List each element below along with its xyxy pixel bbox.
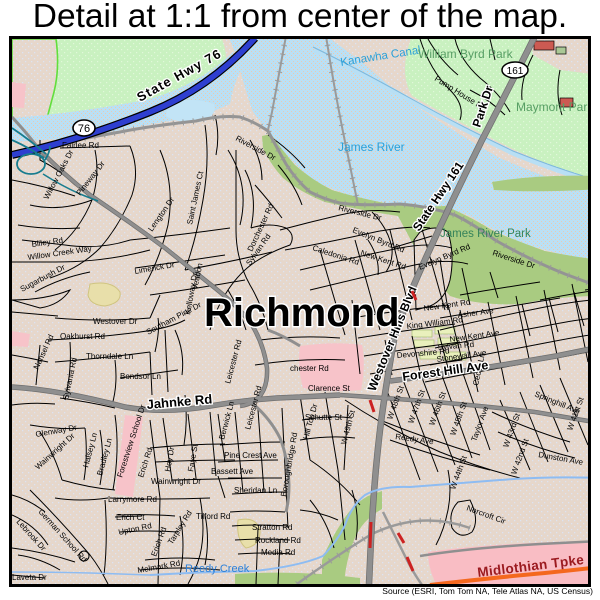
svg-text:76: 76 [78, 123, 90, 135]
svg-text:Richmond: Richmond [204, 291, 400, 335]
svg-text:Stratton Rd: Stratton Rd [252, 523, 292, 532]
svg-text:Westover Dr: Westover Dr [93, 317, 138, 326]
svg-text:Erich Ct: Erich Ct [116, 513, 145, 522]
svg-text:James River Park: James River Park [440, 228, 531, 240]
svg-text:Wainwright Dr: Wainwright Dr [151, 477, 201, 486]
svg-text:Sheridan Ln: Sheridan Ln [234, 486, 277, 495]
svg-text:Oakhurst Rd: Oakhurst Rd [60, 332, 105, 341]
svg-text:Bondsor Ln: Bondsor Ln [120, 372, 161, 381]
svg-text:Tilford Rd: Tilford Rd [196, 512, 230, 521]
svg-text:Larrymore Rd: Larrymore Rd [108, 495, 157, 504]
svg-text:William Byrd Park: William Byrd Park [418, 47, 514, 61]
svg-text:Reedy Creek: Reedy Creek [185, 563, 250, 575]
svg-text:Rockland Rd: Rockland Rd [255, 536, 301, 545]
svg-text:James River: James River [338, 140, 405, 154]
svg-text:chester Rd: chester Rd [290, 364, 329, 373]
svg-text:Bassett Ave: Bassett Ave [211, 467, 254, 476]
svg-text:Thorndale Ln: Thorndale Ln [86, 352, 133, 361]
svg-text:Clarence St: Clarence St [308, 384, 351, 393]
svg-text:Laveta Dr: Laveta Dr [12, 573, 47, 582]
svg-text:161: 161 [507, 66, 524, 77]
svg-text:Pine Crest Ave: Pine Crest Ave [224, 451, 277, 460]
svg-text:Maymont Park: Maymont Park [516, 100, 594, 114]
svg-text:Media Rd: Media Rd [261, 548, 295, 557]
